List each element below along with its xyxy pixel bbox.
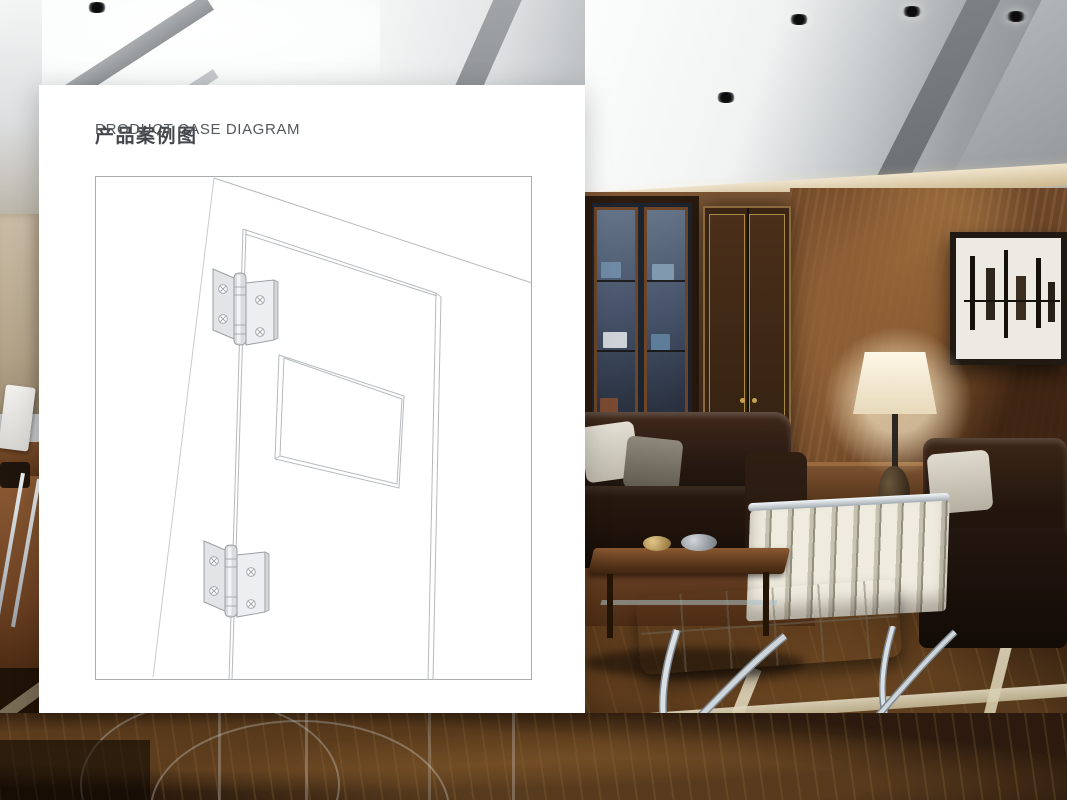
door-handle [740, 398, 745, 403]
left-wall-ceiling [0, 0, 42, 220]
table-leg [607, 574, 613, 638]
wall-top-edge [214, 178, 532, 283]
bottom-hinge [204, 541, 269, 617]
books [603, 332, 627, 348]
interior-room [585, 0, 1067, 800]
shelf [597, 350, 635, 352]
downlight-icon [1005, 11, 1027, 22]
table-decor [643, 536, 671, 551]
shelf [647, 350, 685, 352]
diagram-frame [95, 176, 532, 680]
vision-panel-inner [280, 358, 402, 484]
books [651, 334, 670, 350]
door-hinge-diagram [96, 177, 533, 681]
shelf [647, 280, 685, 282]
downlight-icon [86, 2, 108, 13]
door-right-edge [428, 293, 436, 680]
art-stroke [1036, 258, 1041, 328]
floor-lamp-shade [853, 352, 937, 414]
downlight-icon [788, 14, 810, 25]
reflection-streak [512, 713, 515, 800]
table-decor [681, 534, 717, 551]
art-stroke [970, 256, 975, 330]
art-stroke [1048, 282, 1055, 322]
marble-shadow [0, 740, 150, 800]
vision-panel-reveal [275, 456, 280, 459]
art-stroke [1004, 250, 1008, 338]
downlight-icon [901, 6, 923, 17]
vision-panel-outer [275, 355, 404, 488]
art-stroke [1016, 276, 1026, 320]
title-en: PRODUCT CASE DIAGRAM [95, 121, 300, 138]
top-hinge [213, 269, 278, 345]
framed-artwork [950, 232, 1067, 365]
art-stroke [964, 300, 1060, 302]
table-leg [763, 572, 769, 636]
coffee-table-top [588, 548, 790, 574]
product-case-card: 产品案例图 PRODUCT CASE DIAGRAM [39, 85, 585, 713]
product-case-image: 产品案例图 PRODUCT CASE DIAGRAM [0, 0, 1067, 800]
shelf [597, 280, 635, 282]
coffee-table-shelf [600, 600, 777, 605]
downlight-icon [715, 92, 737, 103]
ceiling-light-panel [0, 0, 430, 95]
art-stroke [986, 268, 995, 320]
floor-lamp-stem [892, 414, 898, 474]
door-right-edge-inner [433, 297, 441, 680]
books [652, 264, 674, 280]
books [601, 262, 621, 278]
office-chair [0, 462, 30, 488]
door-handle [752, 398, 757, 403]
throw-pillow [622, 435, 683, 493]
